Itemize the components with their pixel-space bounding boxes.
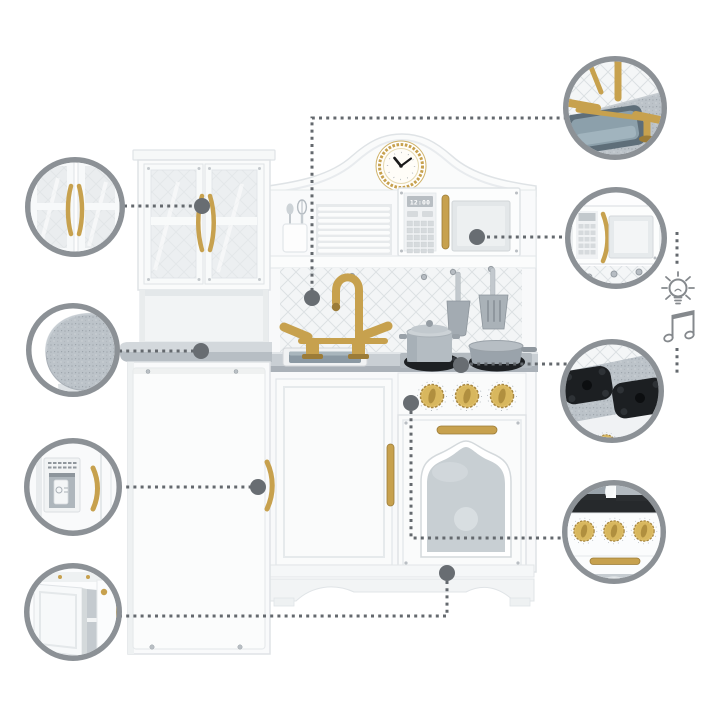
callout-glass-cabinet (28, 158, 122, 256)
pan-handle (521, 347, 537, 352)
hutch-cornice (133, 150, 275, 160)
callout-burners (560, 342, 670, 462)
cabinet-knob (101, 589, 107, 595)
sink-cabinet (276, 379, 394, 565)
plate-rack (316, 204, 392, 255)
oven-window-glass (427, 447, 505, 552)
pot-lid-knob (426, 320, 433, 327)
fridge-door (133, 368, 265, 649)
light-bulb-icon (662, 272, 694, 304)
oven-handle (437, 426, 497, 434)
callout-knobs (565, 479, 663, 590)
callout-microwave (568, 190, 664, 288)
shelf-board (268, 256, 536, 268)
fridge-unit (128, 362, 272, 654)
callout-sink (563, 48, 665, 157)
stove-front (398, 373, 526, 415)
oven-handle-closeup (590, 558, 640, 565)
feature-icons (662, 232, 695, 376)
callout-fridge-dispenser (27, 441, 119, 533)
wall-clock (376, 141, 426, 191)
base-skirt (270, 565, 534, 606)
product-feature-image: 12:00 (0, 0, 720, 720)
cabinet-interior (87, 589, 97, 656)
oven (398, 415, 526, 571)
music-note-icon (663, 310, 694, 342)
callout-open-cabinet (27, 566, 125, 658)
hutch-unit (120, 150, 275, 362)
main-kitchen-unit: 12:00 (266, 134, 538, 606)
spoon-icon (286, 203, 293, 214)
hutch-shelf (140, 290, 268, 342)
callout-counter-corner (29, 306, 129, 396)
microwave-display: 12:00 (410, 199, 430, 207)
microwave-handle (442, 195, 449, 249)
bulb-rays (662, 272, 694, 299)
microwave: 12:00 (398, 188, 520, 256)
cabinet-door-handle (387, 444, 394, 506)
hutch-door-left (144, 164, 203, 284)
